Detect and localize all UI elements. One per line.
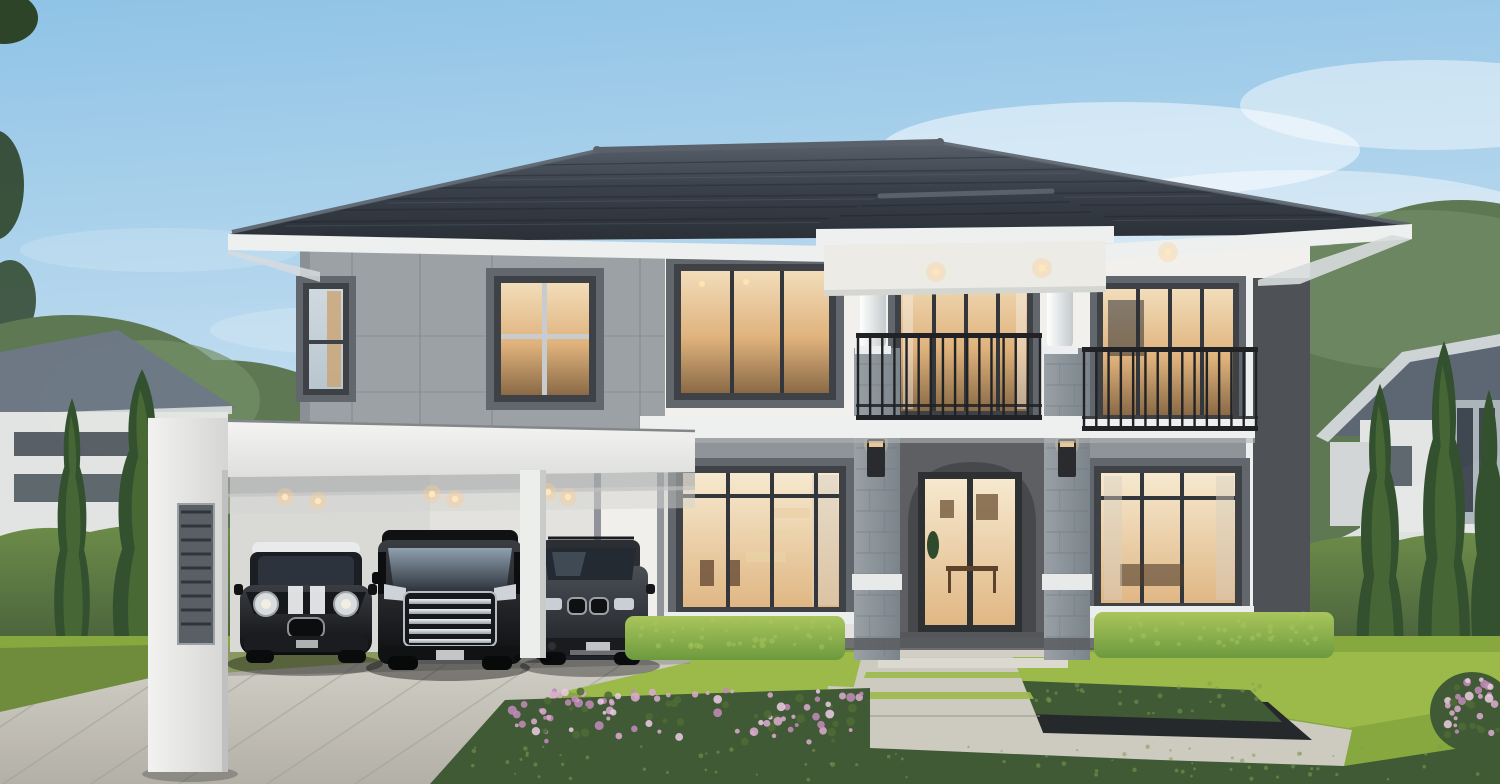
- corner-accent-band: [1253, 278, 1310, 642]
- cars: [227, 530, 660, 681]
- car-minivan: [366, 530, 530, 681]
- square-window: [486, 268, 604, 410]
- front-door: [918, 472, 1022, 632]
- louver-vent: [178, 504, 214, 644]
- portico-roof: [816, 191, 1114, 296]
- carport-left-leg: [142, 418, 238, 782]
- corner-window: [296, 276, 356, 402]
- architectural-rendering: [0, 0, 1500, 784]
- entrance: [878, 438, 1068, 668]
- hedge-box-right: [1094, 611, 1334, 658]
- car-mini-hatchback: [227, 542, 383, 676]
- hedge-box-left: [625, 616, 845, 660]
- entry-step-2: [878, 658, 1068, 668]
- right-balcony-railing: [1082, 347, 1258, 431]
- sliding-window: [666, 256, 844, 408]
- living-window: [1082, 458, 1254, 618]
